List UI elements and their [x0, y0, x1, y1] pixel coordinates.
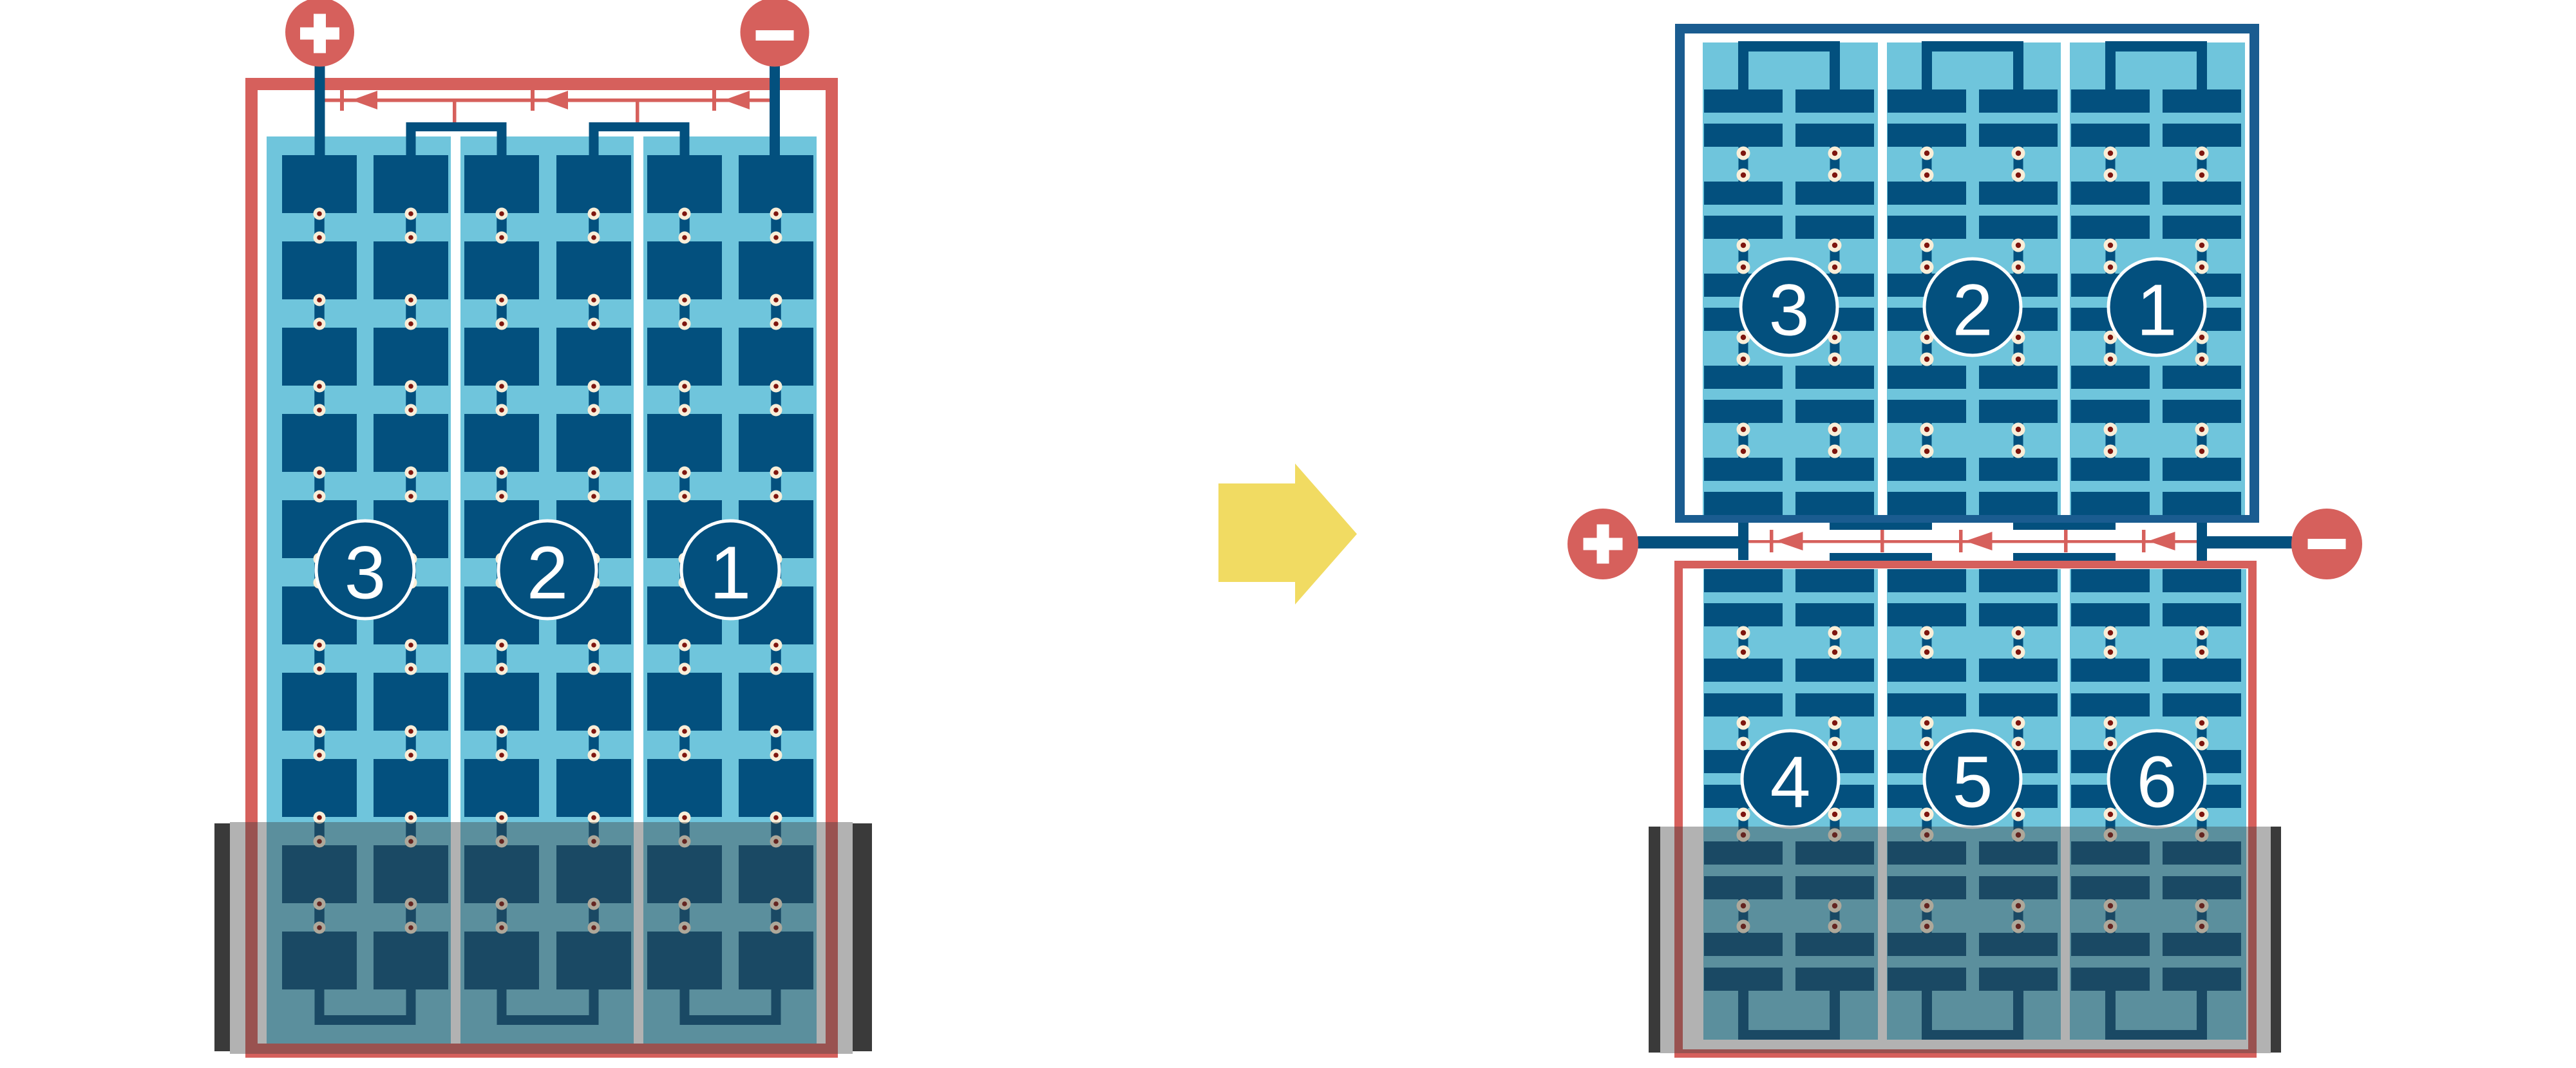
svg-text:2: 2: [1953, 270, 1993, 351]
svg-text:3: 3: [345, 531, 386, 615]
svg-text:5: 5: [1953, 742, 1993, 823]
svg-text:2: 2: [527, 531, 569, 615]
svg-text:1: 1: [2137, 270, 2177, 351]
svg-text:6: 6: [2137, 742, 2177, 823]
svg-text:1: 1: [710, 531, 752, 615]
svg-text:3: 3: [1769, 270, 1810, 351]
svg-text:4: 4: [1770, 742, 1811, 823]
